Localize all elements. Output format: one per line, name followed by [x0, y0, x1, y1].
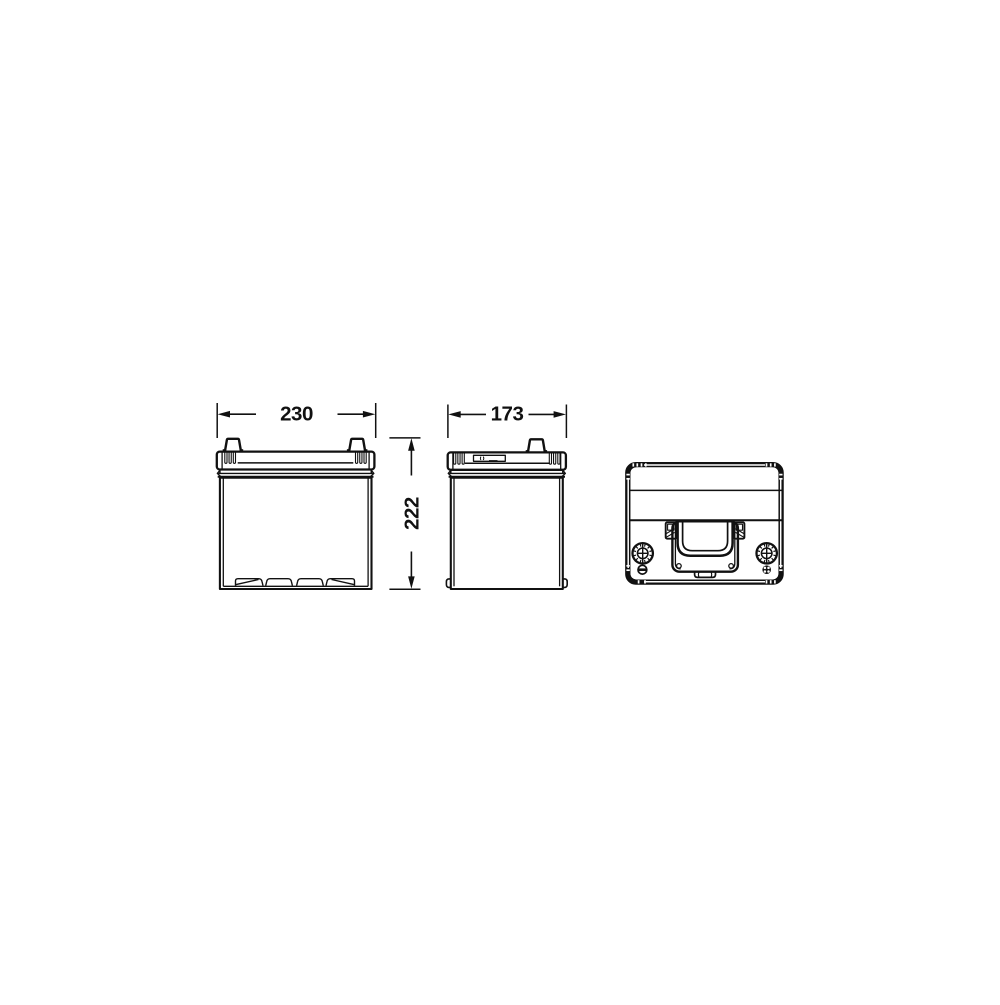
- svg-text:222: 222: [401, 497, 424, 530]
- svg-text:230: 230: [280, 402, 313, 425]
- svg-text:173: 173: [491, 402, 524, 425]
